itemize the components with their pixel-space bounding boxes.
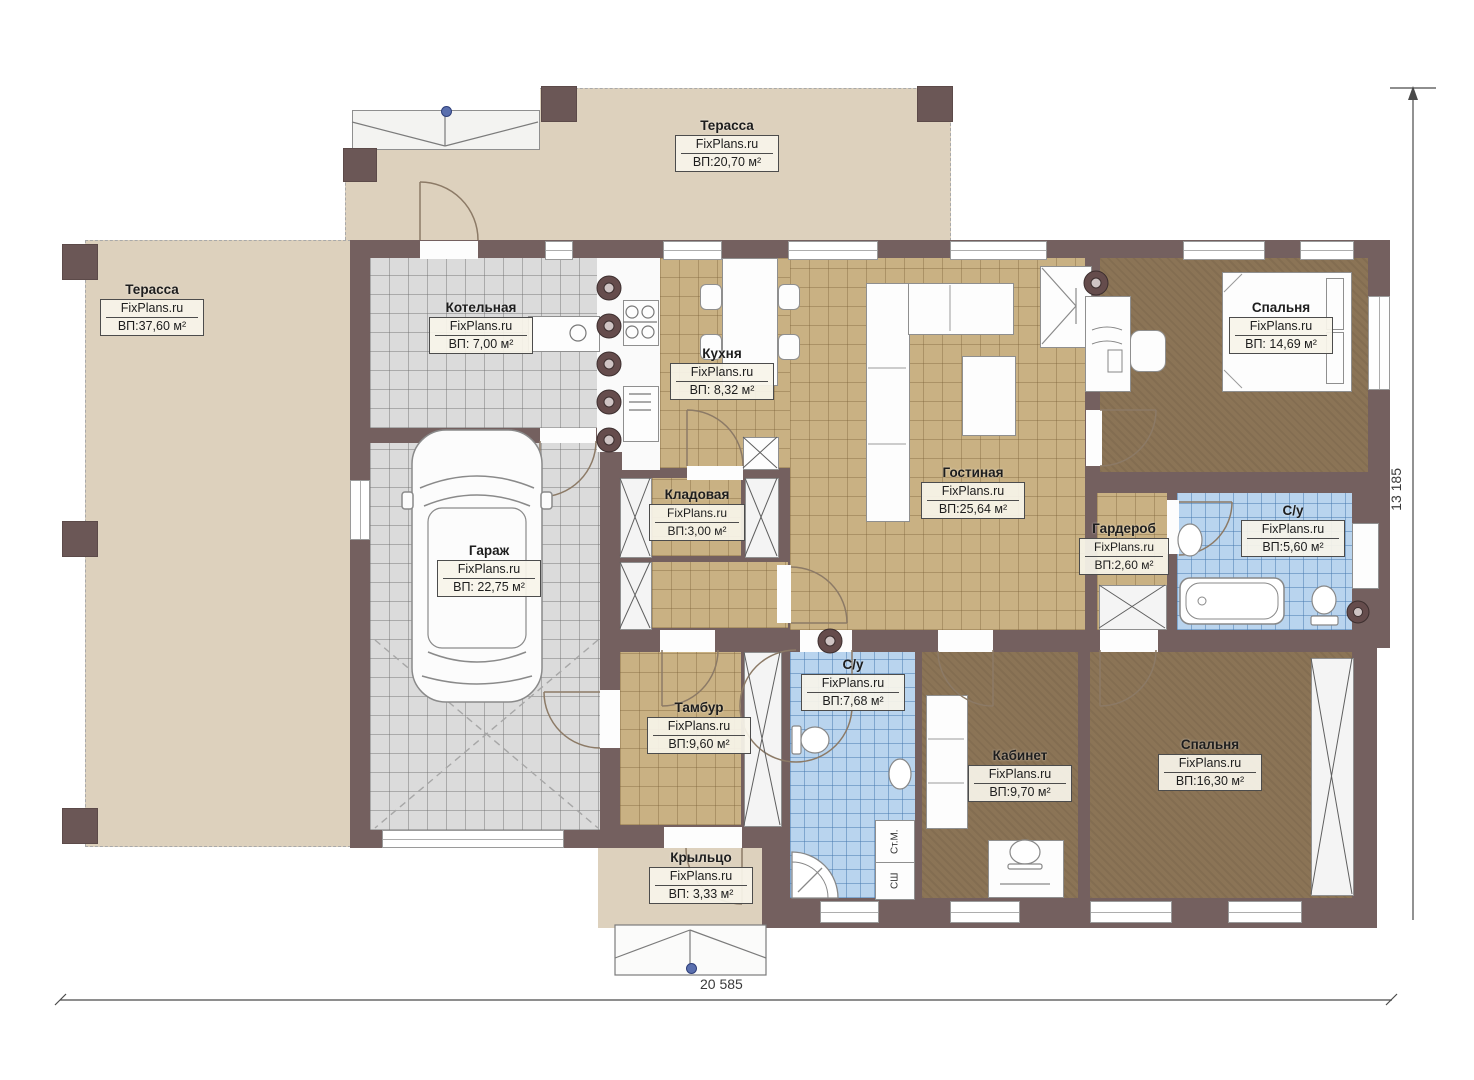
watermark: FixPlans.ru <box>655 868 747 886</box>
watermark: FixPlans.ru <box>1247 521 1339 539</box>
window <box>1090 901 1172 923</box>
room-area: ВП:20,70 м² <box>681 154 773 171</box>
doorway <box>687 466 743 480</box>
watermark: FixPlans.ru <box>443 561 535 579</box>
room-area: ВП: 14,69 м² <box>1235 336 1327 353</box>
fridge <box>623 386 659 442</box>
window <box>545 241 573 260</box>
room-name: Спальня <box>1158 737 1262 752</box>
room-label-porch: Крыльцо FixPlans.ruВП: 3,33 м² <box>649 850 753 904</box>
room-label-bath-2: С/у FixPlans.ruВП:7,68 м² <box>801 657 905 711</box>
column <box>62 244 98 280</box>
room-area: ВП: 8,32 м² <box>676 382 768 399</box>
entry-marker <box>686 963 697 974</box>
room-area: ВП:5,60 м² <box>1247 539 1339 556</box>
chair <box>778 284 800 310</box>
wall-niche <box>1352 523 1379 589</box>
room-label-kitchen: Кухня FixPlans.ruВП: 8,32 м² <box>670 346 774 400</box>
watermark: FixPlans.ru <box>106 300 198 318</box>
room-name: Тамбур <box>647 700 751 715</box>
window <box>1368 296 1390 390</box>
room-label-bedroom-2: Спальня FixPlans.ruВП:16,30 м² <box>1158 737 1262 791</box>
window <box>1300 241 1354 260</box>
room-area: ВП: 3,33 м² <box>655 886 747 903</box>
wardrobe-closet <box>1099 585 1167 630</box>
room-name: Кладовая <box>649 487 745 502</box>
bedroom-2-wardrobe <box>1311 658 1354 896</box>
room-name: Кухня <box>670 346 774 361</box>
room-area: ВП:37,60 м² <box>106 318 198 335</box>
room-name: Гостиная <box>921 465 1025 480</box>
room-name: Гардероб <box>1079 521 1169 536</box>
terrace-doorway <box>420 241 478 259</box>
room-label-boiler: Котельная FixPlans.ruВП: 7,00 м² <box>429 300 533 354</box>
watermark: FixPlans.ru <box>681 136 773 154</box>
closet <box>620 478 652 558</box>
room-name: Крыльцо <box>649 850 753 865</box>
doorway <box>1086 410 1102 466</box>
column <box>62 521 98 557</box>
vent-shaft <box>743 437 779 470</box>
entry-marker <box>441 106 452 117</box>
room-area: ВП: 7,00 м² <box>435 336 527 353</box>
room-name: Котельная <box>429 300 533 315</box>
room-area: ВП:9,60 м² <box>653 736 745 753</box>
watermark: FixPlans.ru <box>1164 755 1256 773</box>
sofa-corner-vertical <box>866 283 910 522</box>
watermark: FixPlans.ru <box>676 364 768 382</box>
watermark: FixPlans.ru <box>1085 539 1163 557</box>
washing-machine-box: Ст.М. <box>875 820 915 864</box>
watermark: FixPlans.ru <box>927 483 1019 501</box>
hall-floor <box>652 562 788 628</box>
closet <box>620 562 652 630</box>
room-name: Терасса <box>675 118 779 133</box>
window <box>788 241 878 260</box>
equipment-strip <box>597 258 622 452</box>
sofa-corner-horizontal <box>908 283 1014 335</box>
watermark: FixPlans.ru <box>653 718 745 736</box>
column <box>343 148 377 182</box>
watermark: FixPlans.ru <box>1235 318 1327 336</box>
dimension-width: 20 585 <box>700 976 743 992</box>
doorway <box>1100 630 1158 652</box>
column <box>917 86 953 122</box>
doorway <box>777 565 791 623</box>
room-label-storage: Кладовая FixPlans.ruВП:3,00 м² <box>649 487 745 541</box>
column <box>541 86 577 122</box>
room-name: С/у <box>801 657 905 672</box>
room-area: ВП:2,60 м² <box>1085 557 1163 574</box>
room-area: ВП:3,00 м² <box>655 523 739 540</box>
watermark: FixPlans.ru <box>655 505 739 523</box>
room-name: Терасса <box>100 282 204 297</box>
window <box>1183 241 1265 260</box>
coffee-table <box>962 356 1016 436</box>
window <box>950 901 1020 923</box>
column <box>62 808 98 844</box>
doorway <box>600 690 620 748</box>
room-label-terrace-top: Терасса FixPlans.ruВП:20,70 м² <box>675 118 779 172</box>
closet <box>745 478 779 558</box>
watermark: FixPlans.ru <box>974 766 1066 784</box>
garage-gate <box>382 830 564 848</box>
doorway <box>938 630 993 652</box>
room-area: ВП:16,30 м² <box>1164 773 1256 790</box>
doorway <box>540 428 596 443</box>
room-area: ВП: 22,75 м² <box>443 579 535 596</box>
garage-floor <box>370 443 600 830</box>
stove <box>623 300 659 346</box>
desk <box>1085 296 1131 392</box>
porch-doorway <box>664 827 742 848</box>
doorway <box>660 630 715 652</box>
window <box>820 901 879 923</box>
chair <box>778 334 800 360</box>
window <box>350 480 370 540</box>
desk-chair <box>1130 330 1166 372</box>
washing-machine-label: Ст.М. <box>876 821 914 863</box>
room-name: Кабинет <box>968 748 1072 763</box>
room-label-bath-1: С/у FixPlans.ruВП:5,60 м² <box>1241 503 1345 557</box>
room-label-tambour: Тамбур FixPlans.ruВП:9,60 м² <box>647 700 751 754</box>
window <box>950 241 1047 260</box>
boiler-counter <box>528 316 600 352</box>
room-area: ВП:25,64 м² <box>927 501 1019 518</box>
room-area: ВП:9,70 м² <box>974 784 1066 801</box>
room-label-wardrobe: Гардероб FixPlans.ruВП:2,60 м² <box>1079 521 1169 575</box>
room-name: Спальня <box>1229 300 1333 315</box>
watermark: FixPlans.ru <box>807 675 899 693</box>
room-label-office: Кабинет FixPlans.ruВП:9,70 м² <box>968 748 1072 802</box>
window <box>1228 901 1302 923</box>
dimension-height: 13 185 <box>1388 468 1404 511</box>
window <box>663 241 722 260</box>
drying-cabinet-label: СШ <box>876 863 914 899</box>
room-label-garage: Гараж FixPlans.ruВП: 22,75 м² <box>437 543 541 597</box>
room-area: ВП:7,68 м² <box>807 693 899 710</box>
drying-cabinet-box: СШ <box>875 862 915 900</box>
room-name: С/у <box>1241 503 1345 518</box>
room-label-bedroom-1: Спальня FixPlans.ruВП: 14,69 м² <box>1229 300 1333 354</box>
doorway <box>800 630 852 652</box>
room-label-living: Гостиная FixPlans.ruВП:25,64 м² <box>921 465 1025 519</box>
chair <box>700 284 722 310</box>
office-desk <box>988 840 1064 898</box>
floor-plan: Ст.М. СШ <box>0 0 1474 1080</box>
watermark: FixPlans.ru <box>435 318 527 336</box>
office-sofa <box>926 695 968 829</box>
room-label-terrace-left: Терасса FixPlans.ruВП:37,60 м² <box>100 282 204 336</box>
room-name: Гараж <box>437 543 541 558</box>
